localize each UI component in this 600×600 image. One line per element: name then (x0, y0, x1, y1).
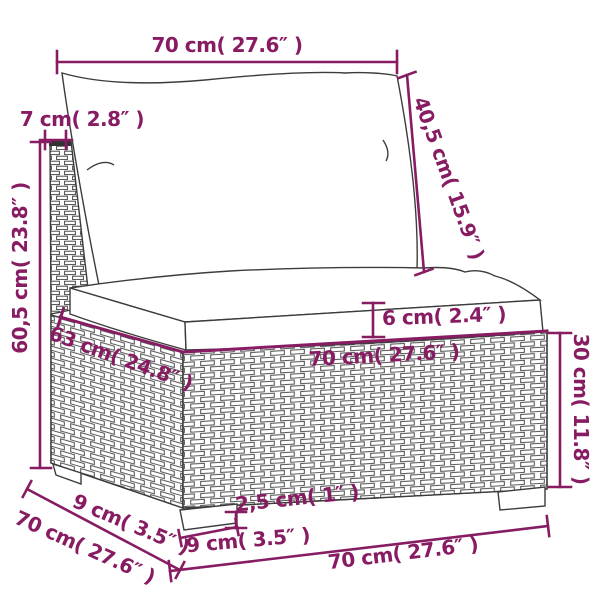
dim-line-overall-height (31, 142, 51, 468)
dim-line-base-height (549, 333, 571, 487)
dimension-diagram: 70 cm( 27.6″ ) 40,5 cm( 15.9″ ) 7 cm( 2.… (0, 0, 600, 600)
back-cushion (62, 72, 417, 290)
dim-label-back-panel-thickness: 7 cm( 2.8″ ) (20, 109, 144, 129)
dim-label-overall-height: 60,5 cm( 23.8″ ) (10, 182, 30, 354)
dim-label-base-height: 30 cm( 11.8″ ) (571, 334, 591, 485)
dim-label-cushion-thickness: 6 cm( 2.4″ ) (382, 304, 507, 328)
dim-label-top-width: 70 cm( 27.6″ ) (152, 35, 303, 55)
